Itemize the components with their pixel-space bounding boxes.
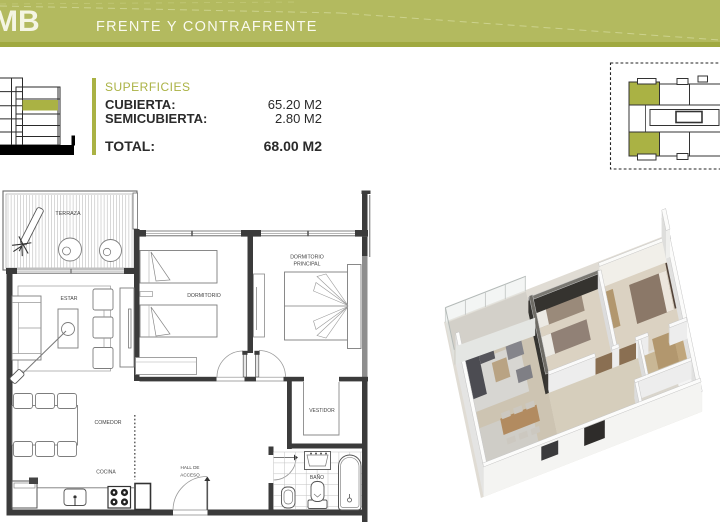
svg-text:HALL DE: HALL DE	[181, 465, 200, 470]
svg-text:BAÑO: BAÑO	[310, 474, 324, 481]
svg-text:DORMITORIO: DORMITORIO	[187, 293, 221, 299]
svg-text:COCINA: COCINA	[96, 470, 116, 476]
svg-text:VESTIDOR: VESTIDOR	[309, 408, 335, 414]
svg-text:PRINCIPAL: PRINCIPAL	[293, 262, 320, 268]
svg-text:DORMITORIO: DORMITORIO	[290, 255, 324, 261]
svg-text:TERRAZA: TERRAZA	[55, 211, 81, 217]
svg-text:ACCESO: ACCESO	[180, 473, 200, 478]
svg-text:ESTAR: ESTAR	[61, 296, 78, 302]
svg-text:COMEDOR: COMEDOR	[94, 420, 121, 426]
